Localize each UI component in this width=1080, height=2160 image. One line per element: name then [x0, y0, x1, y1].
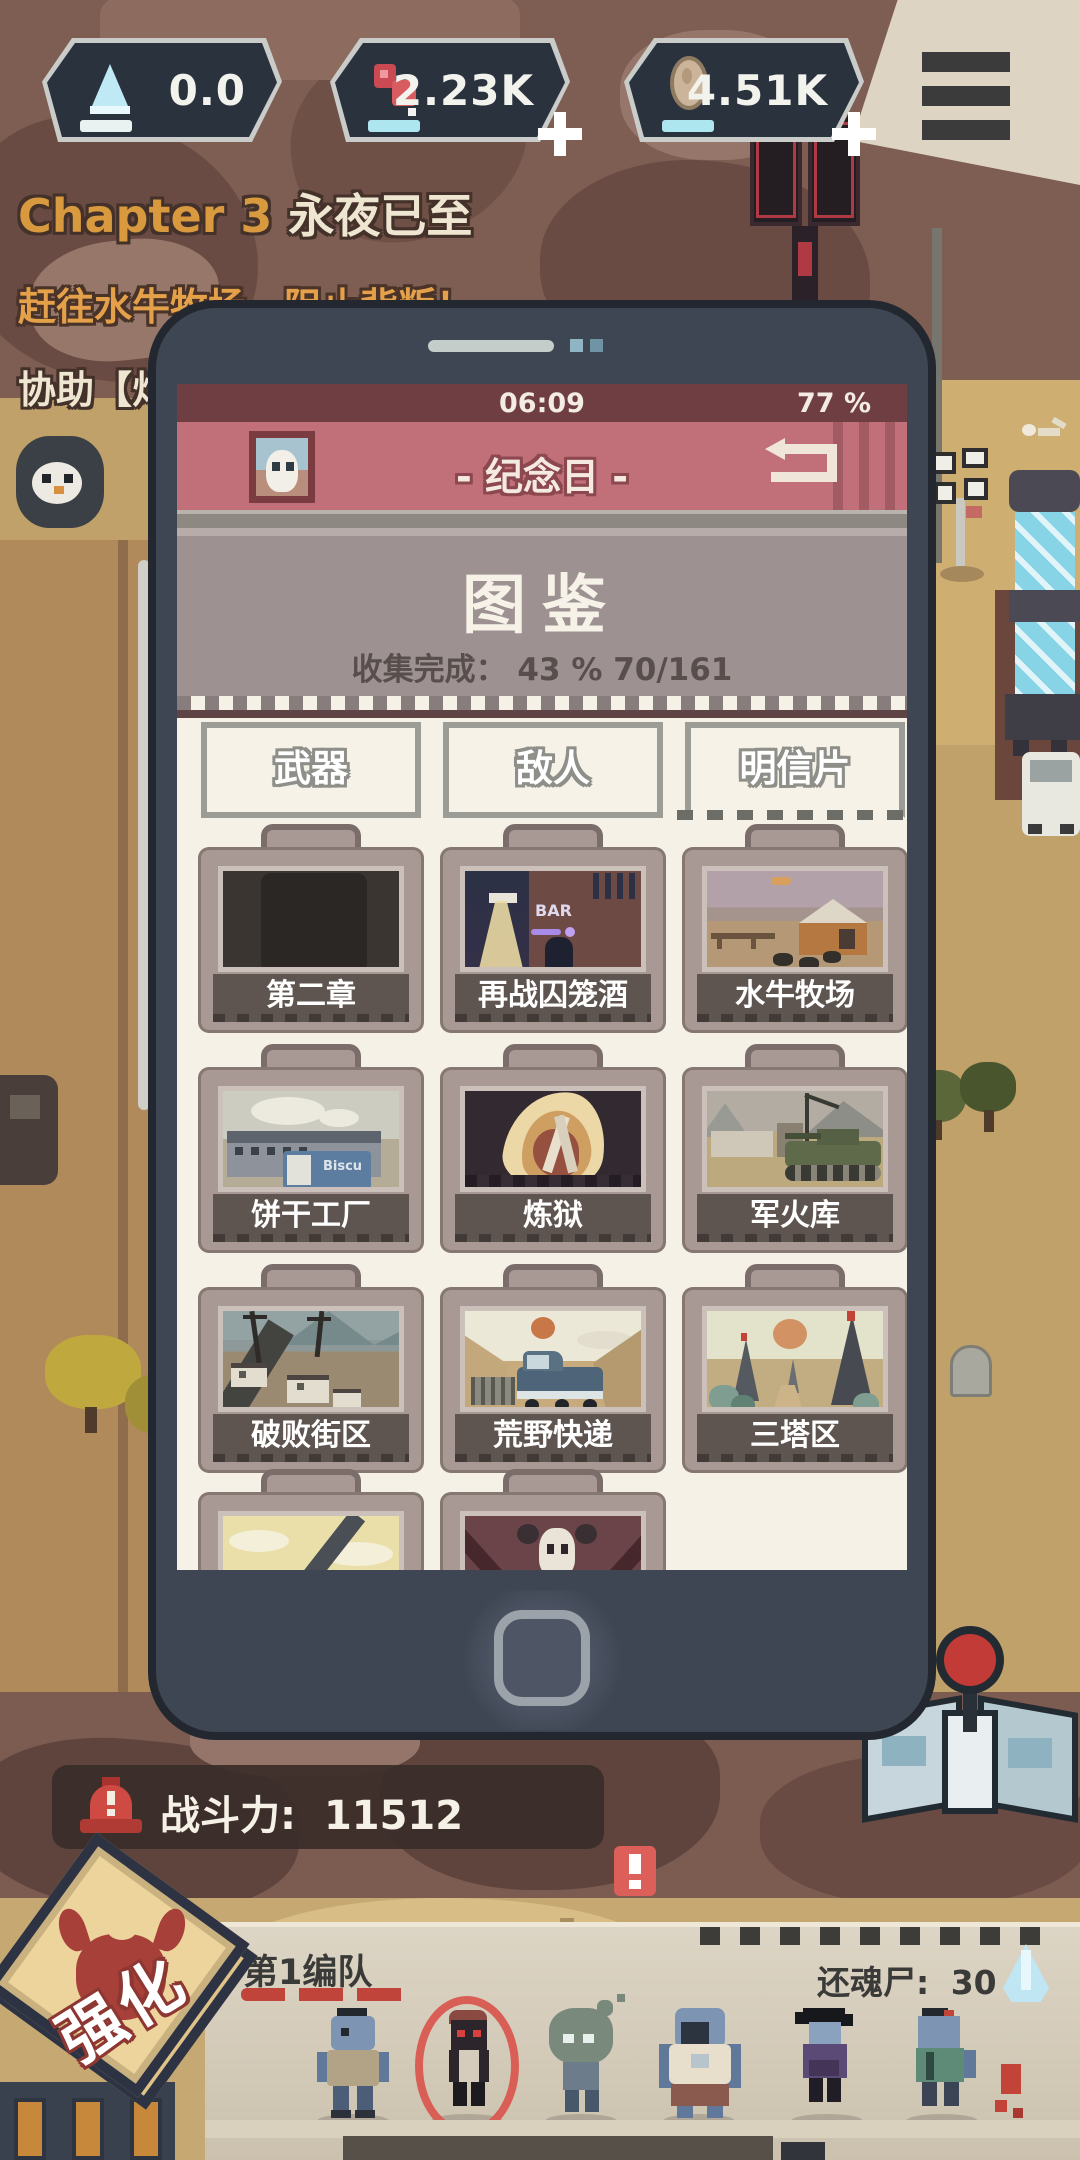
postcard-9-image	[702, 1306, 888, 1412]
phone-camera	[570, 339, 583, 352]
phone-side-button	[138, 560, 150, 1110]
resource-fuel-value: 0.0	[169, 66, 246, 115]
add-ore-button[interactable]	[832, 112, 876, 156]
squad-member-6[interactable]	[900, 2008, 986, 2128]
enhance-button[interactable]: 强化	[0, 1856, 255, 2116]
siren-icon	[80, 1777, 142, 1835]
postcard-4[interactable]: Biscu 饼干工厂	[201, 1044, 421, 1250]
home-button[interactable]	[494, 1610, 590, 1706]
phone-status-bar: 06:09 77 %	[177, 384, 907, 422]
tab-postcards-label: 明信片	[691, 728, 899, 810]
revenant-value: 30	[951, 1963, 997, 2002]
squad-member-2-selected[interactable]	[425, 2008, 511, 2128]
resource-ore-value: 4.51K	[687, 66, 828, 115]
chapter-label: Chapter 3	[18, 189, 272, 243]
tab-enemies[interactable]: 敌人	[443, 722, 663, 818]
squad-panel: 第1编队 还魂尸: 30	[205, 1922, 1080, 2160]
postcard-10[interactable]	[201, 1469, 421, 1570]
resource-fuel[interactable]: 0.0	[42, 38, 282, 142]
postcard-4-label: 饼干工厂	[213, 1194, 409, 1242]
collection-title-block: 图鉴 收集完成： 43 % 70/161	[177, 528, 907, 696]
revenant-label: 还魂尸:	[817, 1963, 929, 2002]
postcard-11[interactable]	[443, 1469, 663, 1570]
phone-screen: 06:09 77 % - 纪念日 -	[177, 384, 907, 1570]
postcard-3[interactable]: 水牛牧场	[685, 824, 905, 1030]
crystal-icon	[1003, 1944, 1049, 2002]
postcard-7-image	[218, 1306, 404, 1412]
postcard-6-image	[702, 1086, 888, 1192]
postcard-7-label: 破败街区	[213, 1414, 409, 1462]
combat-power-value: 11512	[324, 1793, 463, 1839]
postcard-2[interactable]: BAR 再战囚笼酒	[443, 824, 663, 1030]
postcard-8-label: 荒野快递	[455, 1414, 651, 1462]
postcard-6[interactable]: 军火库	[685, 1044, 905, 1250]
resource-ore[interactable]: 4.51K	[624, 38, 864, 142]
combat-power-label: 战斗力:	[160, 1793, 296, 1839]
postcard-3-label: 水牛牧场	[697, 974, 893, 1022]
collection-progress: 收集完成： 43 % 70/161	[177, 644, 907, 689]
chapter-name: 永夜已至	[288, 189, 472, 243]
postcard-8[interactable]: 荒野快递	[443, 1264, 663, 1470]
postcard-9[interactable]: 三塔区	[685, 1264, 905, 1470]
panel-checker-trim	[700, 1927, 1045, 1945]
postcard-5[interactable]: 炼狱	[443, 1044, 663, 1250]
exclamation-badge	[614, 1846, 656, 1896]
tab-weapons[interactable]: 武器	[201, 722, 421, 818]
resource-meat[interactable]: 2.23K	[330, 38, 570, 142]
postcard-1-label: 第二章	[213, 974, 409, 1022]
cart	[1022, 752, 1080, 836]
postcard-1-image	[218, 866, 404, 972]
postcard-10-image	[218, 1511, 404, 1570]
postcard-6-label: 军火库	[697, 1194, 893, 1242]
squad-member-4[interactable]	[657, 2008, 743, 2128]
tab-enemies-label: 敌人	[449, 728, 657, 810]
postcard-1[interactable]: 第二章	[201, 824, 421, 1030]
selected-tab-underline	[677, 810, 907, 820]
squad-member-3[interactable]	[539, 2008, 625, 2128]
gravestone	[950, 1345, 992, 1397]
truck-sign-text: Biscu	[323, 1159, 362, 1174]
resource-bar: 0.0 2.23K 4.51K	[0, 0, 1080, 160]
car	[0, 1075, 58, 1185]
postcard-5-image	[460, 1086, 646, 1192]
postcard-8-image	[460, 1306, 646, 1412]
squad-member-1[interactable]	[311, 2008, 397, 2128]
phone-speaker	[428, 340, 554, 352]
tab-weapons-label: 武器	[207, 728, 415, 810]
bar-sign-text: BAR	[535, 901, 572, 920]
hamburger-menu-icon[interactable]	[922, 52, 1012, 142]
squad-member-5[interactable]	[785, 2008, 871, 2128]
blood-splatter	[995, 2064, 1031, 2128]
combat-power-bar: 战斗力: 11512	[52, 1765, 604, 1849]
postcard-2-image: BAR	[460, 866, 646, 972]
squad-name-underline	[241, 1988, 411, 2001]
status-battery: 77 %	[797, 388, 871, 419]
postcard-11-image	[460, 1511, 646, 1570]
postcard-5-label: 炼狱	[455, 1194, 651, 1242]
return-icon[interactable]	[765, 442, 849, 492]
penguin-avatar	[16, 436, 106, 530]
postcard-2-label: 再战囚笼酒	[455, 974, 651, 1022]
skeleton	[1022, 420, 1072, 446]
signpost	[932, 448, 992, 583]
postcard-9-label: 三塔区	[697, 1414, 893, 1462]
phone-overlay: 06:09 77 % - 纪念日 -	[156, 308, 928, 1732]
game-screen: 0.0 2.23K 4.51K	[0, 0, 1080, 2160]
resource-meat-value: 2.23K	[393, 66, 534, 115]
collection-title: 图鉴	[177, 554, 907, 646]
postcard-3-image	[702, 866, 888, 972]
app-header: - 纪念日 -	[177, 422, 907, 510]
postcard-7[interactable]: 破败街区	[201, 1264, 421, 1470]
tab-postcards[interactable]: 明信片	[685, 722, 905, 818]
flask-icon	[88, 60, 132, 116]
postcard-4-image: Biscu	[218, 1086, 404, 1192]
add-meat-button[interactable]	[538, 112, 582, 156]
